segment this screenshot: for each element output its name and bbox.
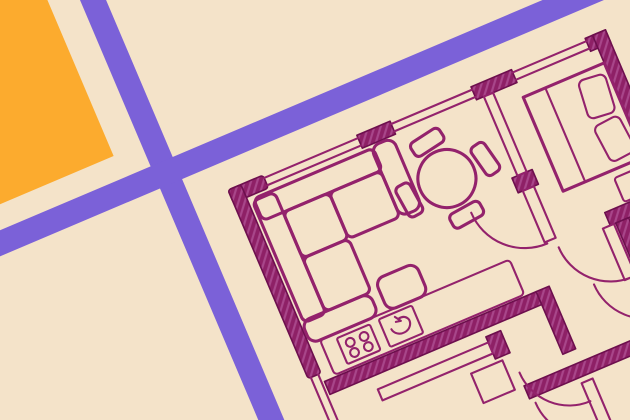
illustration-canvas: [0, 0, 630, 420]
floor-plan-map-illustration: [0, 0, 630, 420]
